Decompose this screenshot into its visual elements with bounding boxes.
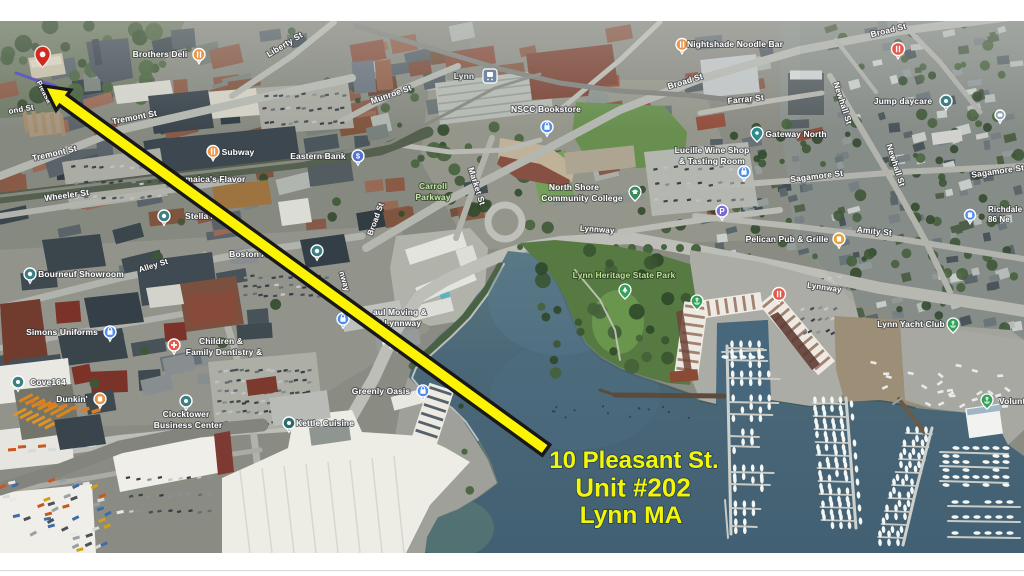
svg-text:Simons Uniforms: Simons Uniforms — [26, 327, 98, 337]
svg-text:Kettle Cuisine: Kettle Cuisine — [296, 418, 354, 428]
svg-text:North Shore: North Shore — [549, 182, 599, 192]
svg-text:Lucille Wine Shop: Lucille Wine Shop — [675, 145, 750, 155]
svg-text:Children &: Children & — [199, 336, 243, 346]
svg-text:Gateway North: Gateway North — [765, 129, 826, 139]
svg-text:Unit #202: Unit #202 — [575, 473, 691, 503]
svg-text:Brothers Deli: Brothers Deli — [133, 49, 188, 59]
svg-text:Lynn Yacht Club: Lynn Yacht Club — [877, 319, 945, 329]
svg-text:Dunkin': Dunkin' — [56, 394, 88, 404]
svg-text:Lynn MA: Lynn MA — [580, 502, 683, 529]
svg-text:aul Moving &: aul Moving & — [373, 307, 427, 317]
svg-text:Lynn Heritage State Park: Lynn Heritage State Park — [573, 270, 676, 280]
svg-text:P: P — [719, 207, 725, 216]
svg-text:NSCC Bookstore: NSCC Bookstore — [511, 104, 581, 114]
svg-text:Community College: Community College — [541, 193, 623, 203]
svg-text:Carroll: Carroll — [419, 181, 447, 191]
svg-text:& Tasting Room: & Tasting Room — [679, 156, 745, 166]
svg-text:Volunte: Volunte — [999, 396, 1024, 406]
svg-text:Bourneuf Showroom: Bourneuf Showroom — [38, 269, 124, 279]
svg-text:10 Pleasant St.: 10 Pleasant St. — [549, 447, 718, 474]
svg-text:Lynn: Lynn — [454, 71, 474, 81]
svg-text:Clocktower: Clocktower — [163, 409, 210, 419]
svg-text:Cove164: Cove164 — [30, 377, 66, 387]
svg-text:Parkway: Parkway — [415, 192, 450, 202]
svg-text:Business Center: Business Center — [154, 420, 223, 430]
svg-text:Richdale c: Richdale c — [988, 205, 1024, 214]
svg-text:Greenly Oasis: Greenly Oasis — [352, 386, 411, 396]
svg-text:Nightshade Noodle Bar: Nightshade Noodle Bar — [687, 39, 784, 49]
svg-text:Subway: Subway — [222, 147, 255, 157]
svg-text:Family Dentistry &: Family Dentistry & — [186, 347, 262, 357]
svg-text:Jump daycare: Jump daycare — [874, 96, 933, 106]
svg-text:86 Ne: 86 Ne — [988, 215, 1010, 224]
svg-text:Pelican Pub & Grille: Pelican Pub & Grille — [746, 234, 829, 244]
svg-text:Eastern Bank: Eastern Bank — [290, 151, 346, 161]
